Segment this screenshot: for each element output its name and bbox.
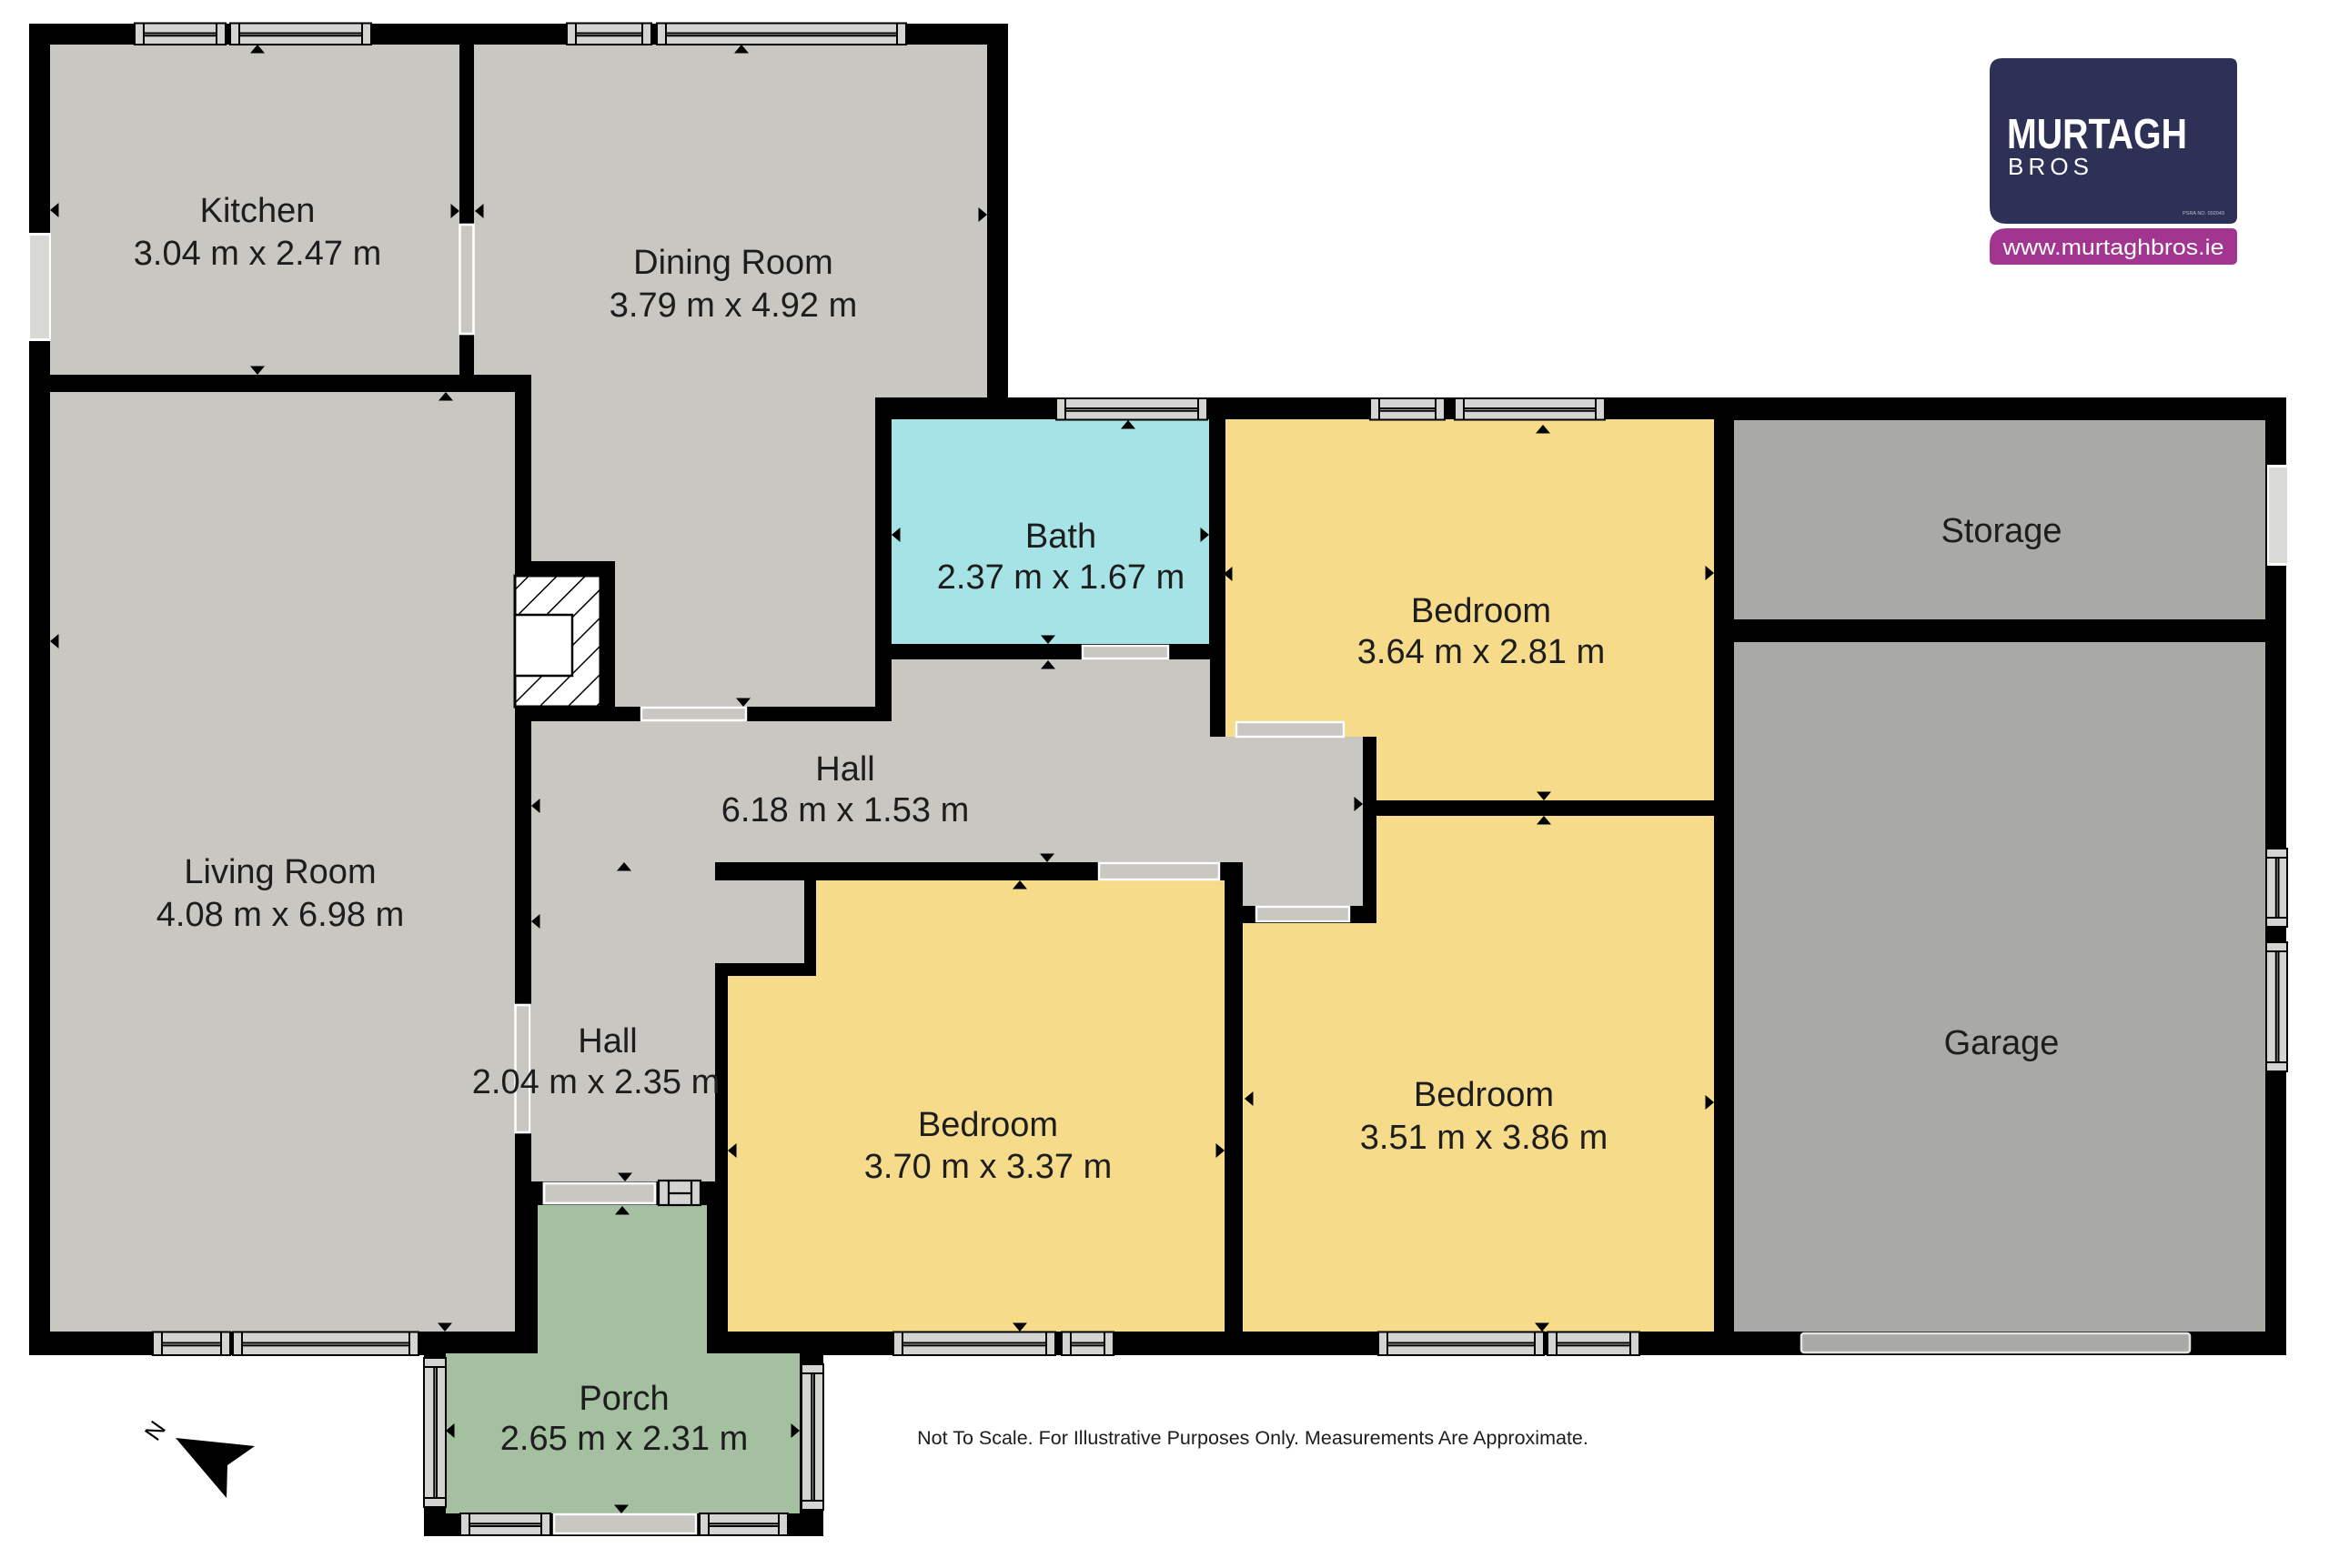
- svg-text:www.murtaghbros.ie: www.murtaghbros.ie: [2001, 236, 2223, 260]
- svg-text:Dining Room: Dining Room: [633, 244, 833, 282]
- svg-text:Bedroom: Bedroom: [1411, 592, 1551, 630]
- svg-text:3.51 m x 3.86 m: 3.51 m x 3.86 m: [1360, 1119, 1608, 1157]
- svg-text:Bedroom: Bedroom: [918, 1106, 1058, 1144]
- svg-text:Bedroom: Bedroom: [1414, 1076, 1554, 1114]
- svg-text:3.64 m x 2.81 m: 3.64 m x 2.81 m: [1357, 633, 1605, 671]
- svg-text:2.04 m x 2.35 m: 2.04 m x 2.35 m: [472, 1063, 720, 1101]
- svg-text:Hall: Hall: [815, 750, 874, 789]
- svg-text:6.18 m x 1.53 m: 6.18 m x 1.53 m: [721, 791, 969, 829]
- svg-text:3.04 m x 2.47 m: 3.04 m x 2.47 m: [134, 235, 381, 273]
- svg-text:3.70 m x 3.37 m: 3.70 m x 3.37 m: [864, 1148, 1112, 1186]
- svg-text:4.08 m x 6.98 m: 4.08 m x 6.98 m: [156, 896, 404, 934]
- svg-text:Bath: Bath: [1025, 518, 1096, 556]
- svg-text:3.79 m x 4.92 m: 3.79 m x 4.92 m: [610, 286, 857, 325]
- svg-text:2.37 m x 1.67 m: 2.37 m x 1.67 m: [937, 558, 1185, 597]
- svg-text:Living Room: Living Room: [184, 853, 376, 891]
- svg-text:Hall: Hall: [578, 1022, 637, 1060]
- svg-text:Not To Scale. For Illustrative: Not To Scale. For Illustrative Purposes …: [917, 1427, 1588, 1449]
- svg-text:MURTAGH: MURTAGH: [2007, 110, 2187, 157]
- svg-text:Garage: Garage: [1944, 1024, 2060, 1062]
- svg-text:Kitchen: Kitchen: [200, 192, 316, 230]
- svg-text:2.65 m x 2.31 m: 2.65 m x 2.31 m: [500, 1420, 748, 1458]
- svg-text:PSRA NO. 002043: PSRA NO. 002043: [2183, 211, 2224, 216]
- svg-text:Storage: Storage: [1941, 512, 2062, 550]
- svg-text:Porch: Porch: [579, 1380, 669, 1418]
